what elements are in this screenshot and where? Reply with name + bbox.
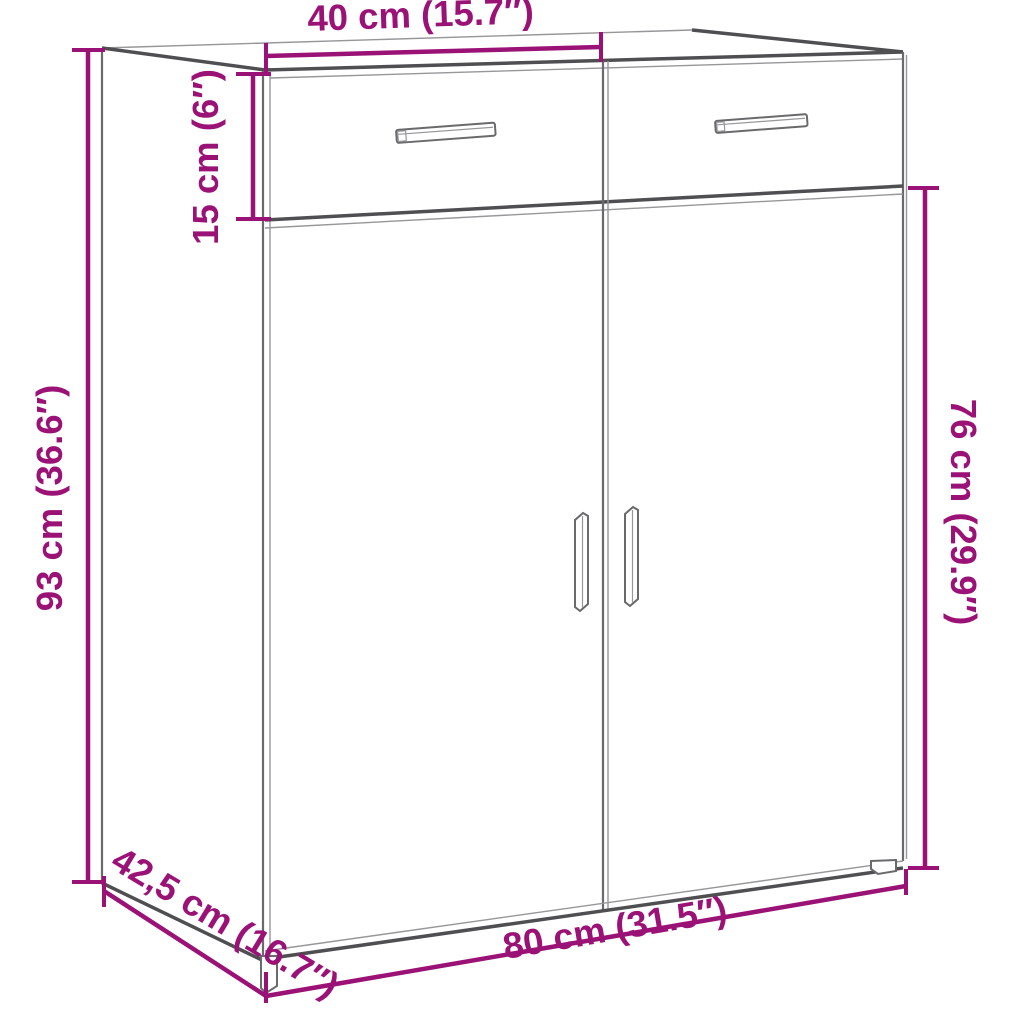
dim-drawer-height: 15 cm (6″) xyxy=(185,69,271,245)
drawer-door-divider xyxy=(265,186,903,220)
dim-overall-height: 93 cm (36.6″) xyxy=(29,50,105,882)
dimension-diagram: 93 cm (36.6″) 15 cm (6″) 40 cm (15.7″) 7… xyxy=(0,0,1024,1024)
drawer-door-divider-inner-line xyxy=(265,194,903,228)
dim-overall-width: 80 cm (31.5″) xyxy=(266,869,906,996)
right-door-handle xyxy=(625,507,638,606)
drawer-height-label: 15 cm (6″) xyxy=(185,69,226,245)
door-height-label: 76 cm (29.9″) xyxy=(943,399,984,625)
dim-door-height: 76 cm (29.9″) xyxy=(908,188,984,868)
cabinet-top-right-edge xyxy=(692,30,903,52)
depth-label: 42,5 cm (16.7″) xyxy=(105,839,346,1006)
right-drawer-handle xyxy=(715,114,808,133)
dim-depth: 42,5 cm (16.7″) xyxy=(104,839,346,1006)
overall-width-label: 80 cm (31.5″) xyxy=(500,888,730,967)
product-dimension-image: 93 cm (36.6″) 15 cm (6″) 40 cm (15.7″) 7… xyxy=(0,0,1024,1024)
left-door-handle xyxy=(575,513,588,611)
drawer-width-label: 40 cm (15.7″) xyxy=(307,0,535,39)
overall-height-label: 93 cm (36.6″) xyxy=(29,385,70,611)
left-drawer-handle xyxy=(396,123,496,143)
cabinet-top-left-edge xyxy=(102,48,265,70)
right-foot xyxy=(871,860,896,874)
